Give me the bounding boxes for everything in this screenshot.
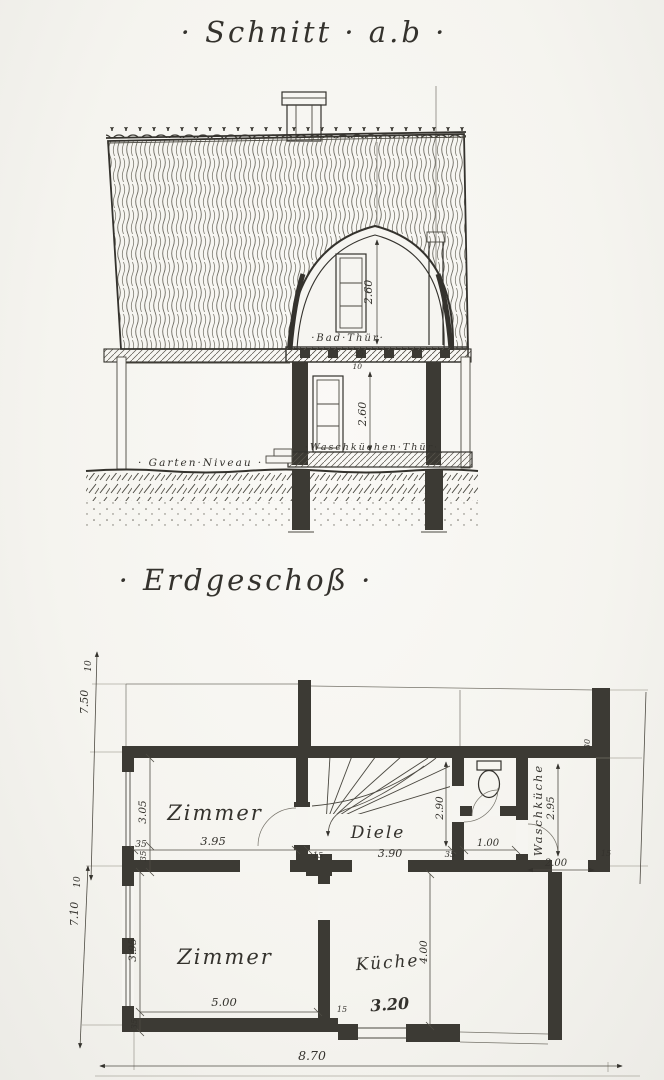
kitchen-label: Küche	[354, 951, 420, 975]
attic-height-dim: 2.60	[362, 280, 375, 306]
dim-total-width: 8.70	[298, 1048, 326, 1063]
ground-earth	[86, 470, 478, 533]
ground-height-dim: 2.60	[356, 402, 369, 428]
dim-kitchen-depth: 4.00	[418, 940, 430, 965]
dim-wash-offset: 30	[583, 739, 592, 749]
dim-wall-35-row: 35	[135, 840, 147, 850]
dim-wall-15-b: 15	[601, 849, 611, 858]
ground-door	[313, 376, 343, 452]
ground-floor-cut: 2.60 ·Waschküchen·Thür·	[117, 357, 472, 469]
dim-left-offset-lower: 10	[73, 876, 83, 888]
dim-wc-width: 1.00	[477, 838, 500, 849]
extension-lines	[82, 684, 648, 1072]
plan-title: · Erdgeschoß ·	[119, 563, 374, 597]
dim-wall-35-d: 35	[130, 1019, 140, 1030]
floor-dim-35: 35	[354, 349, 364, 358]
wall-middle	[134, 860, 460, 872]
dim-wash-depth: 2.95	[545, 796, 557, 821]
foundation-pier-left	[292, 470, 310, 530]
dim-left-total-lower: 7.10	[68, 902, 81, 927]
section-drawing: 2.60 ·Bad·Thür· 35 10	[86, 86, 478, 532]
dim-wall-35-a: 35	[139, 851, 149, 862]
scanned-drawing-page: · Schnitt · a.b ·	[0, 0, 664, 1080]
floor-plan: Zimmer Diele Zimmer Küche Waschküche	[68, 652, 648, 1076]
hall-label: Diele	[350, 823, 406, 843]
garden-level-label: · Garten·Niveau ·	[138, 457, 263, 469]
section-title: · Schnitt · a.b ·	[181, 15, 448, 49]
dim-kitchen-width: 3.20	[370, 994, 410, 1016]
terrace	[126, 680, 607, 746]
left-wall-windows	[122, 772, 134, 1006]
dim-room-upper-depth: 3.05	[137, 800, 149, 824]
bad-door-label: ·Bad·Thür·	[311, 333, 385, 344]
wall-top	[122, 746, 608, 758]
dim-room-upper-width: 3.95	[200, 834, 226, 848]
floor-dim-10: 10	[352, 362, 362, 371]
dim-room-lower-depth: 3.95	[127, 938, 139, 962]
dim-wall-15-a: 15	[313, 851, 323, 860]
dim-room-lower-width: 5.00	[211, 995, 237, 1009]
dim-hall-width: 3.90	[378, 847, 403, 860]
wall-kitchen-east	[548, 872, 562, 1040]
drawing-canvas: · Schnitt · a.b ·	[0, 0, 664, 1080]
dim-wall-15-c: 15	[337, 1005, 347, 1014]
dim-left-total-upper: 7.50	[78, 690, 91, 715]
foundation-pier-right	[425, 470, 443, 530]
wall-right-annex	[596, 688, 610, 872]
room-door-arc	[258, 808, 296, 846]
dim-left-offset-upper: 10	[84, 660, 94, 672]
dim-hall-depth: 2.90	[434, 796, 446, 821]
wall-bottom-left	[122, 1018, 338, 1032]
dim-wall-35-b2: 35	[445, 850, 456, 860]
wash-door-label: ·Waschküchen·Thür·	[305, 442, 439, 453]
wash-kitchen-label: Waschküche	[531, 764, 545, 856]
dim-wash-width: 2.00	[544, 858, 568, 869]
room-upper-label: Zimmer	[166, 801, 263, 825]
room-lower-label: Zimmer	[176, 945, 273, 969]
